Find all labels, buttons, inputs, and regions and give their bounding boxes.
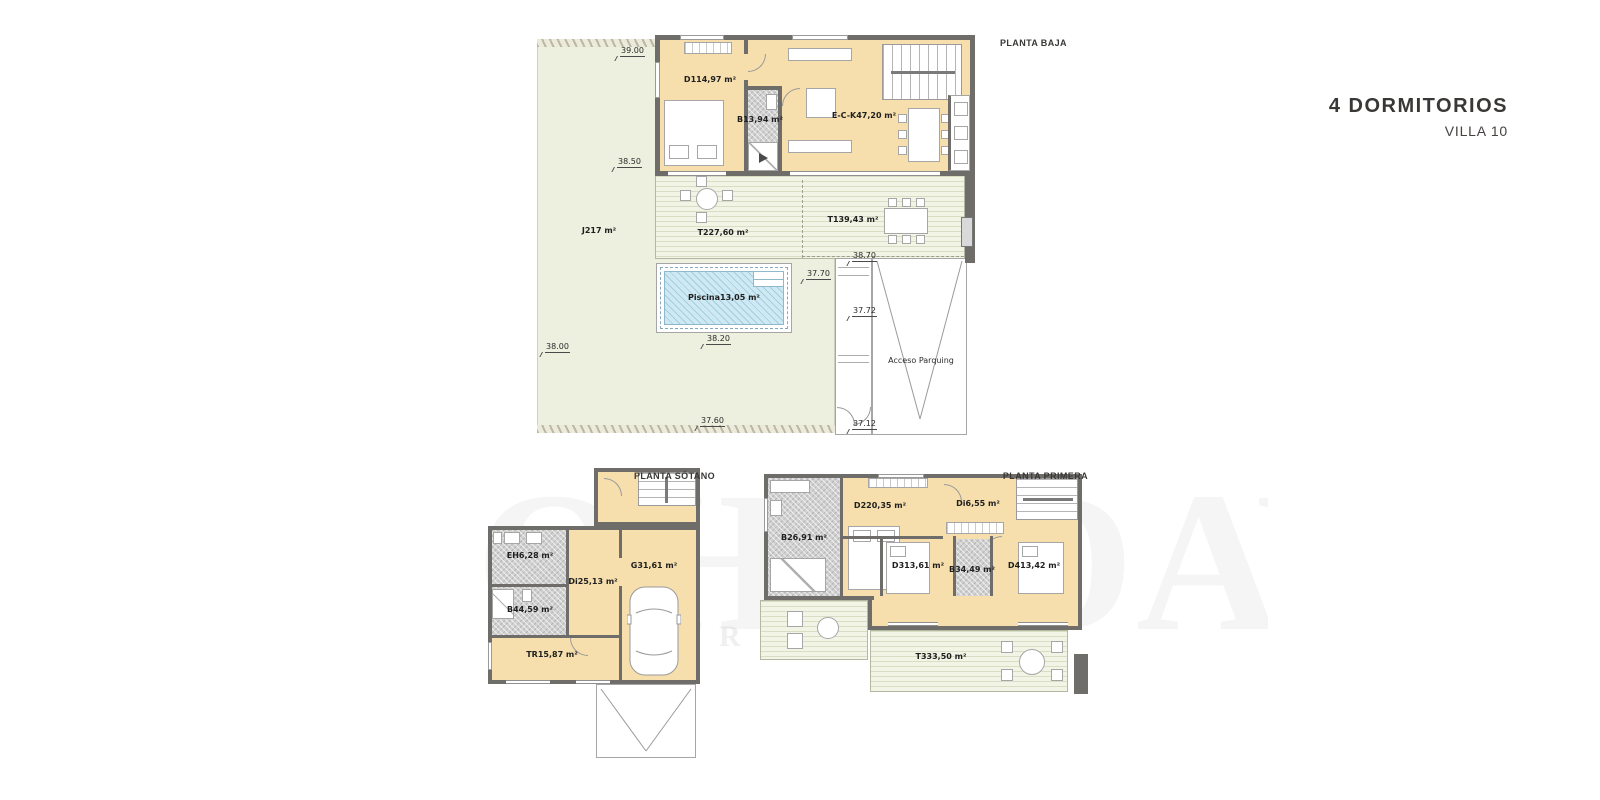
chair [696, 212, 707, 223]
elevation-mark-3850: 38.50 [617, 158, 642, 168]
glass-door [506, 680, 550, 684]
ramp-v-lines [597, 685, 695, 757]
round-table [696, 188, 718, 210]
plan-planta-primera: B26,91 m² D220,35 m² Di6,55 m² D313,61 m… [758, 458, 1098, 700]
first-floor-block: B26,91 m² D220,35 m² Di6,55 m² D313,61 m… [764, 474, 1082, 600]
chair [902, 198, 911, 207]
chair [898, 130, 907, 139]
room-label-t3: T333,50 m² [916, 651, 967, 663]
elevation-mark-3770: 37.70 [806, 270, 831, 280]
lounge-chair [787, 633, 803, 649]
oven [954, 150, 968, 164]
ramp-v-lines [873, 259, 966, 434]
closet-di [946, 522, 1004, 534]
page-subtitle: VILLA 10 [1208, 123, 1508, 139]
washbasin [766, 94, 777, 110]
bed-d1 [664, 100, 724, 166]
bathtub [770, 480, 810, 493]
room-label-d2: D220,35 m² [854, 500, 906, 512]
room-label-j: J217 m² [582, 225, 616, 237]
door-arc [748, 54, 766, 72]
wall [843, 536, 943, 539]
washer [504, 532, 520, 544]
sofa [788, 140, 852, 153]
elevation-mark-3800: 38.00 [545, 343, 570, 353]
staircase [882, 44, 962, 100]
car-icon [627, 585, 681, 677]
window [792, 35, 848, 40]
window [488, 642, 492, 670]
page-title: 4 DORMITORIOS [1208, 95, 1508, 118]
pillow [697, 145, 717, 159]
room-label-eh: EH6,28 m² [507, 550, 554, 562]
room-label-g: G31,61 m² [631, 560, 678, 572]
terrace-upper-left [760, 600, 868, 660]
terrace-edge-line [802, 256, 964, 257]
chair [1001, 641, 1013, 653]
title-block: 4 DORMITORIOS VILLA 10 [1208, 95, 1508, 139]
pool-step-line [754, 279, 783, 280]
terrace-band [655, 175, 965, 259]
first-floor-block-extension [868, 600, 1082, 630]
plan-planta-sotano: EH6,28 m² B44,59 m² Di25,13 m² TR15,87 m… [488, 460, 704, 760]
floorplan-sheet: OHN DAVID LUXURY [0, 0, 1600, 800]
room-label-b4: B44,59 m² [507, 604, 553, 616]
wall [778, 86, 782, 171]
chair [696, 176, 707, 187]
hob [954, 126, 968, 140]
plan-title-sotano: PLANTA SÓTANO [610, 471, 715, 481]
washbasin [770, 500, 782, 516]
glass-door [668, 171, 726, 176]
room-label-tr: TR15,87 m² [526, 649, 578, 661]
garage-ramp [596, 684, 696, 758]
utility-fixture [961, 217, 973, 247]
sofa [788, 48, 852, 61]
room-label-di: Di6,55 m² [956, 498, 1000, 510]
room-label-t2: T227,60 m² [698, 227, 749, 239]
wall [744, 40, 748, 54]
elevation-mark-3760: 37.60 [700, 417, 725, 427]
elevation-mark-3870: 38.70 [852, 252, 877, 262]
pillow [1022, 546, 1038, 557]
stair-rail [1023, 498, 1073, 501]
chair [916, 235, 925, 244]
dining-table [908, 108, 940, 162]
dryer [526, 532, 542, 544]
toilet [522, 589, 532, 602]
room-label-b1: B13,94 m² [737, 114, 783, 126]
house-ground-floor: D114,97 m² B13,94 m² E-C-K47,20 m² [655, 35, 975, 176]
step-line [838, 355, 869, 356]
room-label-di2: Di25,13 m² [568, 576, 617, 588]
sink [493, 532, 502, 544]
room-label-b3: B34,49 m² [949, 564, 995, 576]
elevation-mark-3820: 38.20 [706, 335, 731, 345]
closet-d2 [868, 478, 928, 488]
chair [1051, 641, 1063, 653]
plot-edge-hatch-bottom [537, 425, 835, 433]
chair [898, 114, 907, 123]
elevation-mark-3772: 37.72 [852, 307, 877, 317]
pillow [890, 546, 906, 557]
step-line [838, 362, 869, 363]
parking-ramp: Acceso Parquing [872, 258, 967, 435]
pool-steps [753, 271, 784, 287]
chair [888, 198, 897, 207]
wall [880, 536, 883, 596]
elevation-mark-3712: 37.12 [852, 420, 877, 430]
window [764, 498, 768, 532]
room-label-eck: E-C-K47,20 m² [832, 110, 896, 122]
chair [916, 198, 925, 207]
shower-b2 [770, 558, 826, 592]
room-label-acceso: Acceso Parquing [888, 355, 954, 367]
plan-planta-baja: Acceso Parquing [537, 35, 975, 437]
window [878, 474, 924, 478]
step-line [838, 267, 869, 268]
dining-table-terrace [884, 208, 928, 234]
chair [680, 190, 691, 201]
room-label-d1: D114,97 m² [684, 74, 736, 86]
chair [1001, 669, 1013, 681]
staircase [1016, 478, 1078, 520]
terrace-planter-wall [1074, 654, 1088, 694]
lounge-chair [787, 611, 803, 627]
room-label-d4: D413,42 m² [1008, 560, 1060, 572]
terrace-divider-line [802, 180, 803, 258]
plan-title-baja: PLANTA BAJA [1000, 38, 1067, 48]
driveway [835, 258, 872, 435]
room-label-d3: D313,61 m² [892, 560, 944, 572]
glass-slider [1018, 622, 1068, 626]
room-label-t1: T139,43 m² [828, 214, 879, 226]
entrance-arrow-icon [759, 153, 768, 163]
door-arc [782, 88, 800, 106]
basement-block: EH6,28 m² B44,59 m² Di25,13 m² TR15,87 m… [488, 526, 700, 684]
window [680, 35, 724, 40]
elevation-mark-3900: 39.00 [620, 47, 645, 57]
wall [619, 586, 622, 680]
wall [492, 635, 622, 638]
chair [888, 235, 897, 244]
chair [722, 190, 733, 201]
sink [954, 102, 968, 116]
room-label-b2: B26,91 m² [781, 532, 827, 544]
pillow [669, 145, 689, 159]
chair [902, 235, 911, 244]
chair [898, 146, 907, 155]
kitchen-counter [948, 95, 970, 171]
glass-slider [790, 171, 940, 176]
stair-rail [891, 71, 955, 74]
terrace-t3: T333,50 m² [870, 630, 1068, 692]
round-table [1019, 649, 1045, 675]
plan-title-primera: PLANTA PRIMERA [978, 471, 1088, 481]
step-line [838, 275, 869, 276]
wall [619, 530, 622, 558]
closet-d1 [684, 42, 732, 54]
glass-slider [888, 622, 938, 626]
room-label-piscina: Piscina13,05 m² [688, 292, 760, 304]
chair [1051, 669, 1063, 681]
window [655, 62, 660, 98]
round-table [817, 617, 839, 639]
